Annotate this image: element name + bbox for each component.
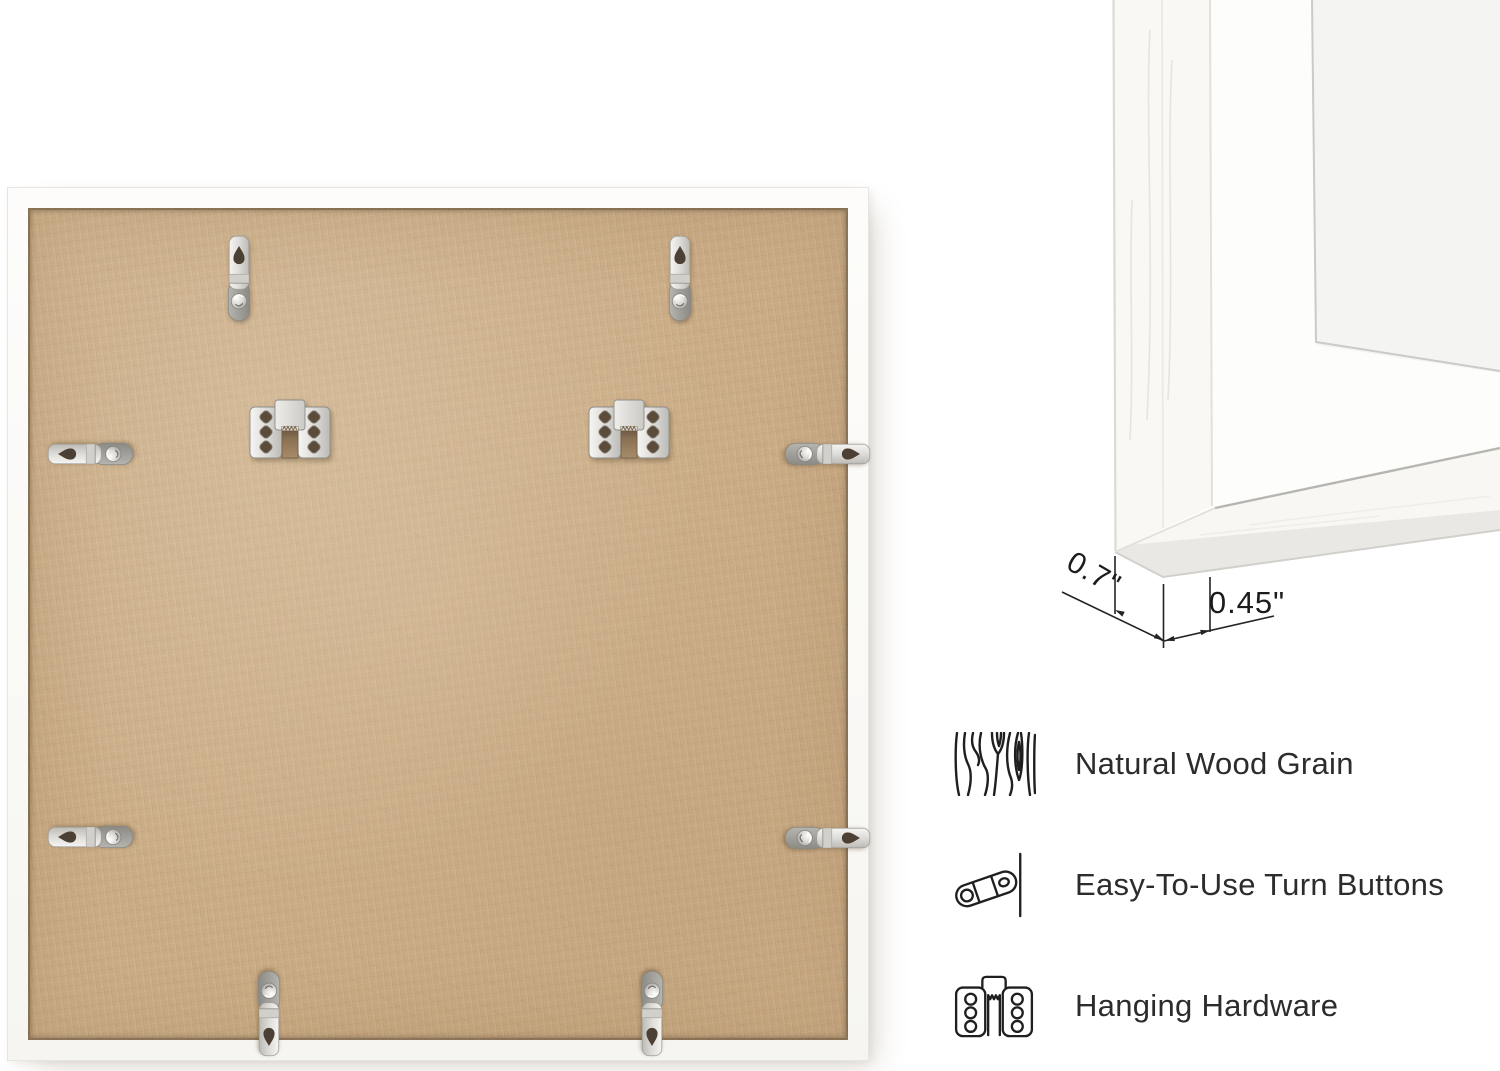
- feature-row-hanging-hardware: Hanging Hardware: [952, 972, 1492, 1040]
- frame-back-photo: [8, 188, 868, 1060]
- turn-button-icon: [667, 232, 693, 326]
- turn-button-left-upper: [44, 441, 138, 467]
- sawtooth-hanger-icon: [249, 399, 331, 459]
- turn-button-icon: [44, 824, 138, 850]
- corner-detail-photo: 0.7" 0.45": [1000, 0, 1500, 700]
- turn-button-top-left: [226, 232, 252, 326]
- turn-button-right-upper: [780, 441, 874, 467]
- turn-button-icon: [639, 966, 665, 1060]
- width-measurement-label: 0.45": [1209, 585, 1285, 620]
- turn-button-bottom-left: [256, 966, 282, 1060]
- turn-button-left-lower: [44, 824, 138, 850]
- turn-button-icon: [44, 441, 138, 467]
- sawtooth-hanger-left: [249, 399, 331, 459]
- turn-button-icon: [226, 232, 252, 326]
- turn-button-right-lower: [780, 825, 874, 851]
- feature-row-wood-grain: Natural Wood Grain: [952, 730, 1492, 798]
- turn-button-icon: [256, 966, 282, 1060]
- wood-grain-icon: [952, 730, 1036, 798]
- feature-row-turn-buttons: Easy-To-Use Turn Buttons: [952, 851, 1492, 919]
- sawtooth-hanger-right: [588, 399, 670, 459]
- product-image: 0.7" 0.45": [0, 0, 1500, 1071]
- artwork-area: [1312, 0, 1500, 373]
- turn-button-top-right: [667, 232, 693, 326]
- sawtooth-hanger-icon: [588, 399, 670, 459]
- turn-button-icon: [780, 441, 874, 467]
- turn-button-icon: [780, 825, 874, 851]
- turn-button-bottom-right: [639, 966, 665, 1060]
- hanging-hardware-icon: [952, 972, 1036, 1040]
- turn-button-icon: [952, 851, 1036, 919]
- feature-label: Natural Wood Grain: [1075, 746, 1354, 782]
- feature-label: Hanging Hardware: [1075, 988, 1338, 1024]
- mdf-backing-board: [28, 208, 848, 1040]
- feature-label: Easy-To-Use Turn Buttons: [1075, 867, 1444, 903]
